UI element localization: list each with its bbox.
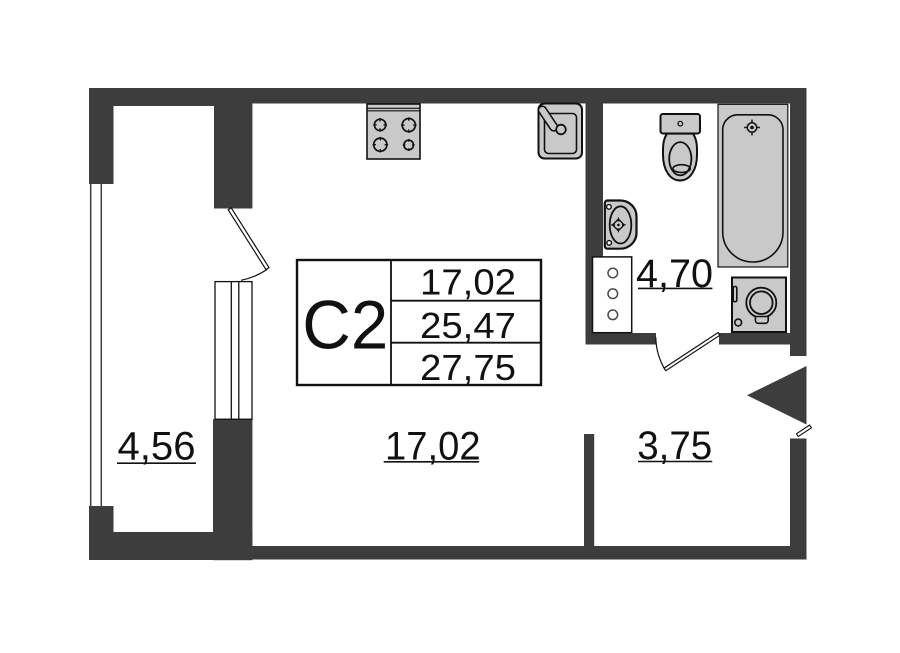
svg-text:4,56: 4,56 (118, 424, 196, 468)
svg-text:27,75: 27,75 (420, 347, 516, 388)
svg-text:25,47: 25,47 (420, 305, 516, 346)
svg-text:4,70: 4,70 (636, 252, 713, 296)
svg-text:17,02: 17,02 (420, 261, 516, 302)
svg-text:C2: C2 (302, 287, 388, 364)
